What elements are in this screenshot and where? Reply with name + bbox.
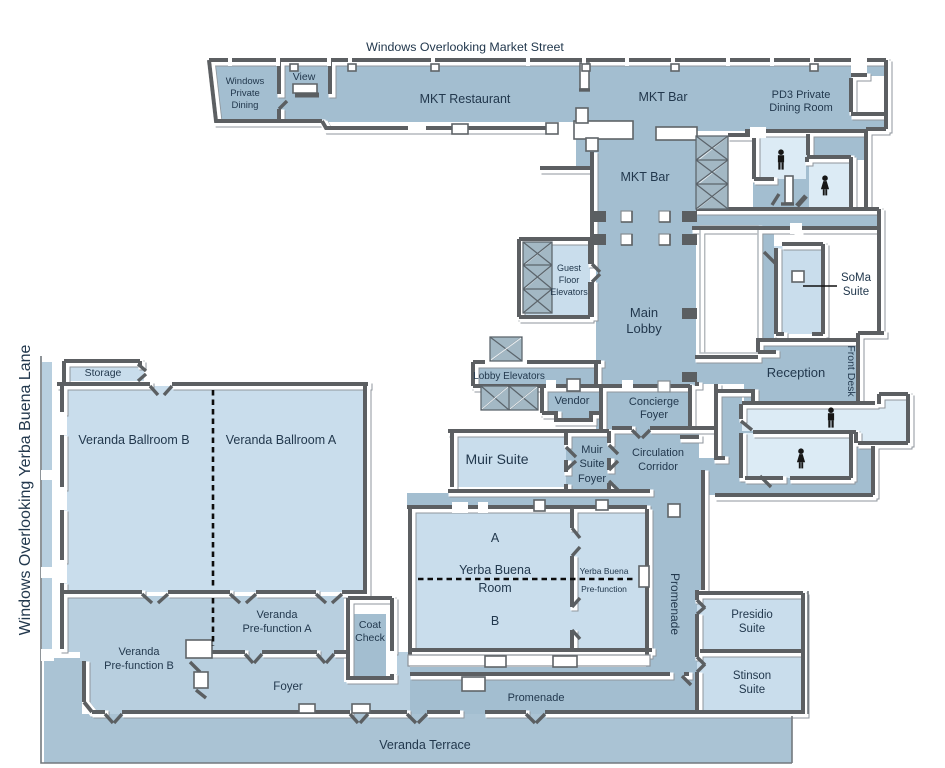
svg-text:Dining Room: Dining Room: [769, 102, 833, 114]
svg-text:Lobby Elevators: Lobby Elevators: [473, 371, 545, 382]
svg-text:Veranda: Veranda: [257, 609, 299, 621]
svg-text:SoMa: SoMa: [841, 272, 872, 284]
svg-text:Vendor: Vendor: [555, 395, 590, 407]
svg-text:Windows: Windows: [226, 76, 265, 87]
svg-text:MKT Restaurant: MKT Restaurant: [420, 92, 511, 106]
svg-text:Foyer: Foyer: [640, 409, 668, 421]
svg-text:Suite: Suite: [843, 286, 869, 298]
svg-text:Check: Check: [355, 632, 386, 644]
svg-text:Suite: Suite: [579, 458, 604, 470]
svg-text:Lobby: Lobby: [626, 321, 662, 336]
svg-text:A: A: [491, 531, 500, 545]
svg-text:Foyer: Foyer: [273, 681, 303, 693]
svg-text:Muir Suite: Muir Suite: [465, 451, 528, 467]
svg-text:Promenade: Promenade: [508, 692, 565, 704]
svg-text:Veranda Ballroom A: Veranda Ballroom A: [226, 433, 337, 447]
svg-text:Veranda: Veranda: [119, 646, 161, 658]
svg-text:Veranda Ballroom B: Veranda Ballroom B: [78, 433, 189, 447]
svg-text:Corridor: Corridor: [638, 461, 678, 473]
svg-text:MKT Bar: MKT Bar: [638, 90, 687, 104]
svg-text:MKT Bar: MKT Bar: [620, 170, 669, 184]
svg-text:Promenade: Promenade: [668, 573, 682, 635]
svg-text:Pre-function: Pre-function: [581, 584, 627, 594]
svg-text:Storage: Storage: [85, 367, 122, 379]
svg-text:Guest: Guest: [557, 263, 582, 273]
svg-text:Suite: Suite: [739, 684, 765, 696]
svg-text:Stinson: Stinson: [733, 670, 771, 682]
svg-text:Front Desk: Front Desk: [845, 345, 857, 397]
svg-text:Muir: Muir: [581, 444, 603, 456]
svg-text:B: B: [491, 614, 499, 628]
svg-text:Foyer: Foyer: [578, 473, 606, 485]
svg-text:Windows Overlooking Market Str: Windows Overlooking Market Street: [366, 40, 564, 54]
svg-text:Yerba Buena: Yerba Buena: [580, 566, 629, 576]
svg-text:Pre-function A: Pre-function A: [242, 623, 312, 635]
svg-text:Room: Room: [478, 581, 511, 595]
svg-text:Windows Overlooking Yerba Buen: Windows Overlooking Yerba Buena Lane: [17, 344, 34, 635]
svg-text:Dining: Dining: [232, 100, 259, 111]
svg-text:Suite: Suite: [739, 623, 765, 635]
svg-text:Pre-function B: Pre-function B: [104, 660, 174, 672]
svg-text:Main: Main: [630, 305, 658, 320]
svg-text:Private: Private: [230, 88, 260, 99]
svg-text:Veranda Terrace: Veranda Terrace: [379, 738, 471, 752]
svg-text:Coat: Coat: [359, 619, 381, 631]
svg-text:Elevators: Elevators: [550, 287, 588, 297]
svg-text:Yerba Buena: Yerba Buena: [459, 563, 531, 577]
svg-text:PD3 Private: PD3 Private: [772, 89, 831, 101]
svg-text:Presidio: Presidio: [731, 609, 773, 621]
svg-text:Concierge: Concierge: [629, 396, 679, 408]
svg-text:Circulation: Circulation: [632, 447, 684, 459]
svg-text:Reception: Reception: [767, 365, 826, 380]
svg-text:Floor: Floor: [559, 275, 580, 285]
svg-text:View: View: [293, 71, 316, 83]
